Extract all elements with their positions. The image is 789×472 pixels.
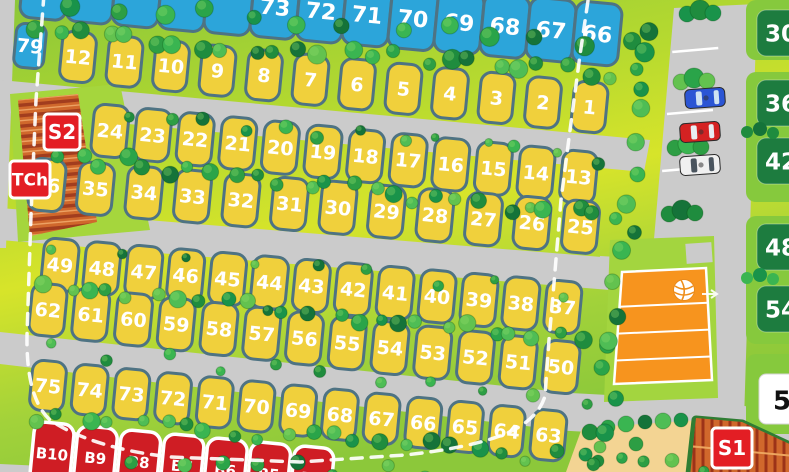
tree-highlight bbox=[106, 27, 114, 35]
tree-highlight bbox=[315, 366, 321, 372]
pitch-8[interactable]: 8 bbox=[245, 49, 284, 102]
tree-highlight bbox=[575, 201, 583, 209]
tree-icon bbox=[753, 268, 767, 282]
tch-label[interactable]: TCh bbox=[10, 161, 50, 198]
pitch-number: 19 bbox=[309, 141, 337, 165]
tree-highlight bbox=[171, 292, 180, 301]
pitch-number: 54 bbox=[765, 297, 789, 323]
pitch-73[interactable]: 73 bbox=[112, 368, 151, 421]
tree-highlight bbox=[434, 281, 439, 286]
pitch-number: 30 bbox=[765, 21, 789, 47]
tree-highlight bbox=[460, 316, 469, 325]
tree-highlight bbox=[431, 190, 438, 197]
tree-highlight bbox=[625, 34, 634, 43]
tree-highlight bbox=[586, 207, 593, 214]
tree-highlight bbox=[700, 467, 705, 472]
pitch-number: 71 bbox=[200, 391, 228, 415]
pitch-number: 29 bbox=[372, 200, 400, 224]
pitch-number: 2 bbox=[535, 92, 550, 115]
pitch-48[interactable]: 48 bbox=[757, 224, 789, 270]
pitch-number: 16 bbox=[436, 153, 464, 177]
tree-highlight bbox=[611, 310, 619, 318]
pitch-15[interactable]: 15 bbox=[473, 141, 513, 196]
tree-highlight bbox=[666, 454, 673, 461]
tree-highlight bbox=[217, 367, 222, 372]
tree-highlight bbox=[31, 415, 38, 422]
pitch-71[interactable]: 71 bbox=[195, 376, 234, 429]
tree-icon bbox=[655, 413, 671, 429]
tree-highlight bbox=[196, 42, 205, 51]
tree-highlight bbox=[253, 435, 258, 440]
pitch-number: 55 bbox=[333, 332, 361, 356]
pitch-number: 75 bbox=[34, 375, 62, 399]
pitch-number: 72 bbox=[304, 0, 337, 26]
pitch-21[interactable]: 21 bbox=[218, 116, 258, 171]
pitch-18[interactable]: 18 bbox=[346, 129, 386, 184]
pitch-number: 42 bbox=[765, 149, 789, 175]
white-car-icon bbox=[679, 154, 720, 176]
pitch-69[interactable]: 69 bbox=[433, 0, 485, 55]
tree-highlight bbox=[337, 310, 343, 316]
tree-highlight bbox=[69, 286, 74, 291]
tree-highlight bbox=[639, 457, 645, 463]
tree-highlight bbox=[611, 213, 617, 219]
pitch-number: 70 bbox=[242, 395, 270, 419]
pitch-number: 49 bbox=[46, 254, 74, 278]
tree-highlight bbox=[276, 307, 282, 313]
tree-highlight bbox=[164, 37, 173, 46]
tree-highlight bbox=[460, 52, 468, 60]
pitch-number: 17 bbox=[394, 149, 422, 173]
tree-highlight bbox=[409, 316, 416, 323]
pitch-number: 43 bbox=[297, 275, 325, 299]
pitch-number: 6 bbox=[349, 74, 364, 97]
tree-highlight bbox=[125, 113, 130, 118]
tree-highlight bbox=[632, 64, 638, 70]
tree-highlight bbox=[472, 194, 480, 202]
tree-highlight bbox=[425, 434, 434, 443]
pitch-number: 73 bbox=[258, 0, 291, 22]
tree-highlight bbox=[223, 293, 230, 300]
tree-highlight bbox=[302, 307, 310, 315]
tree-highlight bbox=[164, 416, 170, 422]
pitch-13[interactable]: 13 bbox=[559, 149, 599, 204]
pitch-38[interactable]: 38 bbox=[501, 276, 541, 331]
tree-highlight bbox=[383, 460, 389, 466]
pitch-41[interactable]: 41 bbox=[375, 265, 415, 320]
car-windshield bbox=[696, 91, 703, 105]
tree-highlight bbox=[486, 139, 490, 143]
tree-highlight bbox=[242, 294, 250, 302]
red-car-icon bbox=[679, 121, 720, 143]
tree-highlight bbox=[634, 101, 643, 110]
tree-highlight bbox=[252, 47, 259, 54]
tree-highlight bbox=[526, 203, 531, 208]
tree-highlight bbox=[309, 46, 319, 56]
tree-highlight bbox=[79, 150, 86, 157]
campsite-site-plan: 3036424854573727170696867661211109876543… bbox=[0, 0, 789, 472]
tree-highlight bbox=[427, 377, 432, 382]
tree-highlight bbox=[92, 160, 100, 168]
tree-highlight bbox=[593, 158, 599, 164]
car-windshield bbox=[691, 125, 698, 139]
tree-icon bbox=[767, 127, 779, 139]
pitch-36[interactable]: 36 bbox=[757, 80, 789, 126]
tree-highlight bbox=[47, 339, 52, 344]
tree-highlight bbox=[83, 283, 91, 291]
tree-highlight bbox=[135, 161, 143, 169]
pitch-number: 31 bbox=[275, 193, 303, 217]
pitch-3[interactable]: 3 bbox=[477, 71, 516, 124]
tree-highlight bbox=[284, 429, 290, 435]
tree-highlight bbox=[271, 360, 277, 366]
tree-highlight bbox=[158, 7, 168, 17]
pitch-number: 30 bbox=[324, 196, 352, 220]
tree-highlight bbox=[606, 275, 614, 283]
tree-highlight bbox=[214, 44, 221, 51]
pitch-number: 23 bbox=[138, 124, 166, 148]
pitch-number: 41 bbox=[381, 282, 409, 306]
tree-highlight bbox=[314, 260, 320, 266]
pitch-number: 68 bbox=[326, 403, 354, 427]
volleyball-court bbox=[614, 268, 712, 384]
tree-highlight bbox=[619, 196, 628, 205]
tree-highlight bbox=[588, 459, 595, 466]
pitch-number: 11 bbox=[110, 50, 138, 74]
tree-highlight bbox=[377, 378, 382, 383]
tree-highlight bbox=[271, 179, 278, 186]
tree-highlight bbox=[618, 453, 623, 458]
pitch-number: 62 bbox=[34, 299, 62, 323]
pitch-number: B10 bbox=[35, 444, 69, 465]
tree-highlight bbox=[551, 445, 558, 452]
tree-highlight bbox=[197, 113, 204, 120]
tree-highlight bbox=[496, 60, 503, 67]
pitch-number: 3 bbox=[489, 87, 504, 110]
tree-highlight bbox=[497, 448, 503, 454]
pitch-number: 5 bbox=[773, 386, 789, 416]
tree-highlight bbox=[126, 457, 133, 464]
tree-highlight bbox=[580, 449, 587, 456]
pitch-54[interactable]: 54 bbox=[757, 286, 789, 332]
tree-highlight bbox=[289, 17, 298, 26]
pitch-74[interactable]: 74 bbox=[70, 364, 109, 417]
tree-highlight bbox=[203, 165, 211, 173]
tree-highlight bbox=[253, 170, 259, 176]
tree-icon bbox=[753, 122, 767, 136]
tree-highlight bbox=[193, 295, 200, 302]
sanitary-label-s1[interactable]: S1 bbox=[712, 428, 752, 468]
tree-highlight bbox=[507, 206, 515, 214]
pitch-number: 1 bbox=[582, 96, 597, 119]
pitch-number: 4 bbox=[442, 83, 457, 106]
tree-icon bbox=[638, 415, 652, 429]
tree-icon bbox=[629, 437, 643, 451]
tree-highlight bbox=[357, 126, 362, 131]
court-gray-patch bbox=[685, 242, 712, 264]
tree-highlight bbox=[308, 182, 314, 188]
tree-highlight bbox=[121, 149, 130, 158]
tree-highlight bbox=[491, 276, 495, 280]
pitch-number: 36 bbox=[765, 91, 789, 117]
tree-highlight bbox=[117, 27, 125, 35]
pitch-number: B9 bbox=[84, 448, 107, 468]
pitch-number: 24 bbox=[96, 120, 124, 144]
pitch-number: 53 bbox=[418, 341, 446, 365]
pitch-number: 33 bbox=[178, 185, 206, 209]
pitch-number: 7 bbox=[303, 69, 318, 92]
pitch-number: 14 bbox=[522, 161, 550, 185]
tree-highlight bbox=[576, 332, 585, 341]
pitch-number: 72 bbox=[159, 387, 187, 411]
tree-highlight bbox=[197, 1, 206, 10]
tree-highlight bbox=[165, 349, 171, 355]
tree-highlight bbox=[511, 61, 520, 70]
tree-highlight bbox=[596, 361, 604, 369]
tree-highlight bbox=[583, 400, 588, 405]
pitch-number: 20 bbox=[266, 136, 294, 160]
pitch-number: 42 bbox=[339, 278, 367, 302]
tree-highlight bbox=[266, 46, 273, 53]
tree-highlight bbox=[242, 126, 248, 132]
tree-highlight bbox=[378, 316, 383, 321]
tree-highlight bbox=[100, 284, 106, 290]
tree-highlight bbox=[521, 457, 526, 462]
pitch-number: 45 bbox=[213, 268, 241, 292]
pitch-16[interactable]: 16 bbox=[431, 137, 471, 192]
tree-highlight bbox=[554, 149, 558, 153]
pitch-number: 61 bbox=[76, 303, 104, 327]
pitch-70[interactable]: 70 bbox=[387, 0, 439, 51]
tree-highlight bbox=[443, 438, 451, 446]
sanitary-label-s2[interactable]: S2 bbox=[44, 114, 80, 150]
tree-highlight bbox=[525, 332, 533, 340]
pitch-number: 34 bbox=[130, 181, 158, 205]
pitch-70[interactable]: 70 bbox=[237, 380, 276, 433]
car-rear-window bbox=[713, 90, 719, 104]
pitch-number: 22 bbox=[181, 128, 209, 152]
pitch-number: 12 bbox=[64, 46, 92, 70]
car-rear-window bbox=[708, 124, 714, 138]
pitch-number: 74 bbox=[75, 379, 103, 403]
tree-highlight bbox=[52, 151, 59, 158]
tree-highlight bbox=[432, 134, 436, 138]
pitch-66[interactable]: 66 bbox=[571, 1, 623, 67]
pitch-23[interactable]: 23 bbox=[133, 108, 173, 163]
pitch-43[interactable]: 43 bbox=[291, 258, 331, 313]
tree-highlight bbox=[183, 254, 187, 258]
pitch-58[interactable]: 58 bbox=[199, 301, 239, 356]
tree-icon bbox=[767, 273, 779, 285]
tree-highlight bbox=[36, 277, 45, 286]
pitch-number: 5 bbox=[396, 78, 411, 101]
tree-highlight bbox=[629, 135, 638, 144]
tree-highlight bbox=[528, 30, 536, 38]
pitch-number: 18 bbox=[351, 145, 379, 169]
pitch-number: 46 bbox=[171, 264, 199, 288]
pitch-number: 13 bbox=[564, 166, 592, 190]
tree-highlight bbox=[347, 42, 356, 51]
pitch-number: 32 bbox=[227, 189, 255, 213]
tree-highlight bbox=[349, 177, 356, 184]
tree-highlight bbox=[401, 136, 407, 142]
pitch-number: 35 bbox=[81, 177, 109, 201]
pitch-6[interactable]: 6 bbox=[338, 58, 377, 111]
tree-highlight bbox=[530, 58, 537, 65]
pitch-number: 15 bbox=[479, 157, 507, 181]
tree-highlight bbox=[450, 194, 456, 200]
pitch-number: 39 bbox=[465, 289, 493, 313]
pitch-number: 50 bbox=[547, 356, 575, 380]
tree-highlight bbox=[373, 435, 381, 443]
tree-highlight bbox=[102, 356, 108, 362]
tree-highlight bbox=[118, 250, 123, 255]
tree-highlight bbox=[425, 59, 431, 65]
pitch-number: 47 bbox=[129, 261, 157, 285]
tree-highlight bbox=[252, 261, 256, 265]
tree-highlight bbox=[231, 169, 239, 177]
tree-highlight bbox=[605, 73, 611, 79]
tree-highlight bbox=[230, 431, 236, 437]
tree-icon bbox=[705, 5, 721, 21]
pitch-number: 60 bbox=[119, 308, 147, 332]
pitch-4[interactable]: 4 bbox=[431, 67, 470, 120]
pitch-number: 8 bbox=[256, 64, 271, 87]
tree-icon bbox=[594, 441, 606, 453]
pitch-number: 57 bbox=[247, 322, 275, 346]
tree-highlight bbox=[353, 316, 361, 324]
pitch-5[interactable]: 5 bbox=[759, 374, 789, 424]
tree-highlight bbox=[47, 246, 52, 251]
tree-highlight bbox=[482, 28, 492, 38]
pitch-40[interactable]: 40 bbox=[417, 269, 457, 324]
tree-highlight bbox=[509, 141, 515, 147]
tree-highlight bbox=[614, 243, 623, 252]
tree-highlight bbox=[335, 19, 343, 27]
pitch-14[interactable]: 14 bbox=[516, 145, 556, 200]
volleyball-icon bbox=[674, 280, 695, 301]
tree-highlight bbox=[479, 387, 483, 391]
pitch-number: 27 bbox=[469, 208, 497, 232]
blue-car-icon bbox=[684, 87, 725, 109]
tree-highlight bbox=[562, 59, 569, 66]
pitch-number: 48 bbox=[765, 235, 789, 261]
tree-highlight bbox=[373, 183, 379, 189]
tree-highlight bbox=[631, 168, 639, 176]
tree-highlight bbox=[637, 44, 647, 54]
pitch-B9[interactable]: B9 bbox=[72, 425, 118, 472]
tree-highlight bbox=[402, 440, 408, 446]
pitch-number: 48 bbox=[88, 257, 116, 281]
pitch-30[interactable]: 30 bbox=[757, 10, 789, 56]
tree-highlight bbox=[113, 5, 121, 13]
tree-highlight bbox=[347, 435, 354, 442]
tree-highlight bbox=[642, 24, 651, 33]
label-text: S1 bbox=[718, 436, 746, 460]
tree-highlight bbox=[163, 168, 171, 176]
tree-highlight bbox=[398, 24, 406, 32]
pitch-number: 59 bbox=[162, 313, 190, 337]
tree-highlight bbox=[318, 176, 325, 183]
pitch-42[interactable]: 42 bbox=[757, 138, 789, 184]
tree-highlight bbox=[444, 51, 454, 61]
pitch-number: 51 bbox=[504, 351, 532, 375]
tree-highlight bbox=[536, 202, 545, 211]
pitch-75[interactable]: 75 bbox=[29, 359, 68, 412]
pitch-number: 44 bbox=[255, 271, 283, 295]
pitch-19[interactable]: 19 bbox=[303, 124, 343, 179]
tree-highlight bbox=[328, 427, 335, 434]
tree-highlight bbox=[391, 316, 399, 324]
tree-highlight bbox=[362, 265, 367, 270]
tree-highlight bbox=[610, 392, 618, 400]
pitch-number: 9 bbox=[210, 60, 225, 83]
pitch-5[interactable]: 5 bbox=[384, 62, 423, 115]
campsite-map-stage: 3036424854573727170696867661211109876543… bbox=[0, 0, 789, 472]
pitch-number: 28 bbox=[421, 204, 449, 228]
tree-highlight bbox=[196, 424, 204, 432]
tree-highlight bbox=[598, 425, 607, 434]
tree-highlight bbox=[168, 114, 174, 120]
tree-highlight bbox=[179, 459, 186, 466]
car-windshield bbox=[691, 158, 698, 172]
tree-highlight bbox=[154, 289, 160, 295]
tree-highlight bbox=[28, 22, 37, 31]
pitch-number: 54 bbox=[376, 337, 404, 361]
tree-icon bbox=[674, 413, 688, 427]
tree-highlight bbox=[629, 226, 636, 233]
label-text: TCh bbox=[12, 171, 48, 191]
tree-highlight bbox=[388, 45, 395, 52]
pitch-52[interactable]: 52 bbox=[456, 330, 496, 385]
tree-highlight bbox=[387, 187, 396, 196]
tree-highlight bbox=[151, 37, 160, 46]
tree-highlight bbox=[635, 83, 642, 90]
tree-highlight bbox=[556, 328, 562, 334]
pitch-number: 10 bbox=[157, 55, 185, 79]
tree-icon bbox=[741, 126, 753, 138]
tree-highlight bbox=[280, 121, 287, 128]
pitch-number: 71 bbox=[350, 2, 383, 30]
tree-highlight bbox=[443, 18, 452, 27]
pitch-2[interactable]: 2 bbox=[524, 76, 563, 129]
tree-icon bbox=[687, 205, 703, 221]
tree-highlight bbox=[445, 323, 451, 329]
pitch-number: 58 bbox=[205, 318, 233, 342]
tree-highlight bbox=[51, 409, 57, 415]
tree-highlight bbox=[139, 416, 145, 422]
tree-highlight bbox=[248, 11, 255, 18]
tree-highlight bbox=[56, 27, 63, 34]
pitch-number: 38 bbox=[507, 292, 535, 316]
tree-highlight bbox=[308, 426, 315, 433]
tree-highlight bbox=[585, 69, 594, 78]
pitch-number: 64 bbox=[492, 420, 520, 444]
tree-highlight bbox=[492, 329, 499, 336]
pitch-number: 73 bbox=[117, 383, 145, 407]
pitch-53[interactable]: 53 bbox=[413, 325, 453, 380]
label-text: S2 bbox=[48, 120, 76, 144]
tree-highlight bbox=[182, 162, 188, 168]
pitch-number: 69 bbox=[284, 399, 312, 423]
tree-highlight bbox=[292, 42, 300, 50]
pitch-number: 52 bbox=[461, 346, 489, 370]
tree-highlight bbox=[102, 417, 108, 423]
tree-highlight bbox=[367, 51, 374, 58]
tree-highlight bbox=[528, 390, 535, 397]
tree-highlight bbox=[264, 306, 269, 311]
tree-icon bbox=[699, 73, 715, 89]
